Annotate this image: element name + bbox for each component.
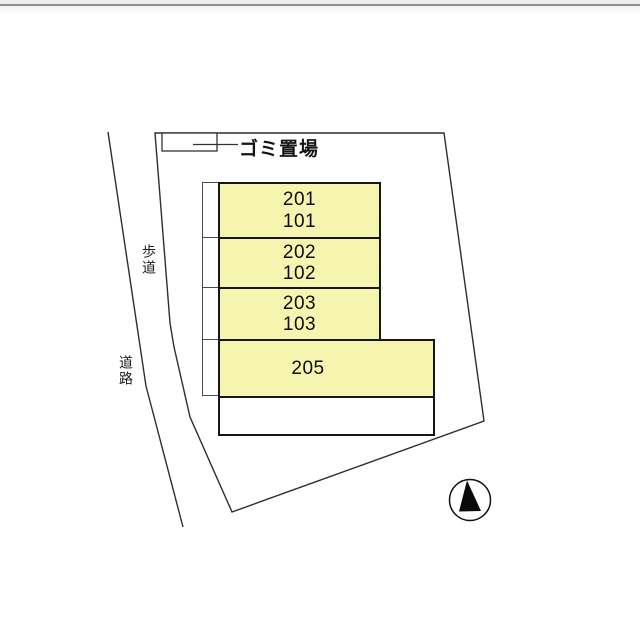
room-number-upper: 202 (283, 242, 316, 263)
corridor-divider (203, 237, 219, 238)
garbage-area-label: ゴミ置場 (239, 134, 319, 161)
garbage-area-rect (162, 133, 217, 151)
room-number-upper: 205 (220, 358, 396, 379)
parking-area-rect (218, 396, 435, 436)
room-number-lower: 103 (283, 314, 316, 335)
sidewalk-label: 歩道 (139, 244, 159, 276)
room-205: 205 (218, 339, 435, 398)
corridor-divider (203, 339, 219, 340)
room-number-lower: 102 (283, 263, 316, 284)
room-label: 205 (220, 358, 396, 379)
room-number-upper: 203 (283, 293, 316, 314)
room-202-102: 202 102 (218, 237, 381, 289)
road-label: 道路 (116, 355, 136, 387)
site-plan-canvas: 201 101 202 102 203 103 205 ゴミ置場 歩道 道路 (0, 0, 640, 630)
room-label: 203 103 (283, 293, 316, 336)
room-201-101: 201 101 (218, 182, 381, 239)
corridor-divider (203, 287, 219, 288)
room-label: 202 102 (283, 242, 316, 285)
room-203-103: 203 103 (218, 287, 381, 341)
room-number-upper: 201 (283, 189, 316, 210)
room-label: 201 101 (283, 189, 316, 232)
room-number-lower: 101 (283, 211, 316, 232)
